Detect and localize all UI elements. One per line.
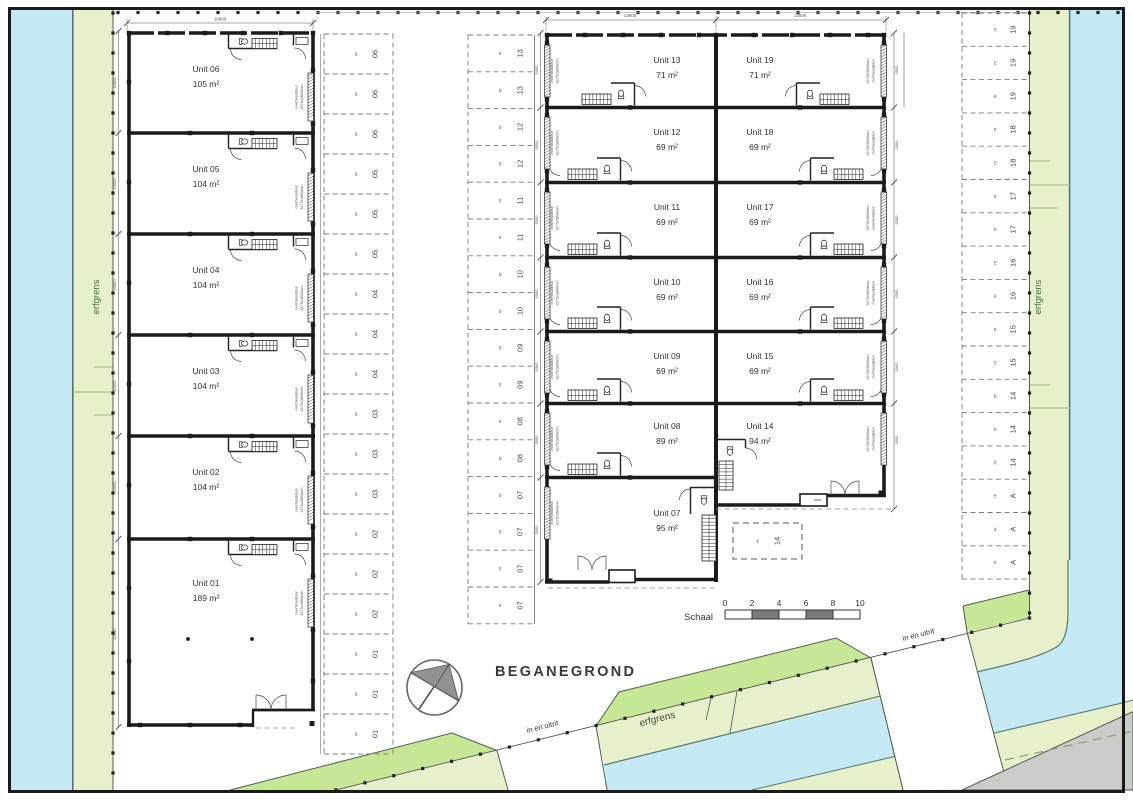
svg-text:nr: nr <box>354 612 359 616</box>
svg-text:overheaddeur: overheaddeur <box>872 59 876 83</box>
svg-text:nr: nr <box>354 132 359 136</box>
svg-text:Unit 07: Unit 07 <box>654 508 681 518</box>
svg-text:89 m²: 89 m² <box>656 436 678 446</box>
svg-text:19: 19 <box>1009 25 1018 33</box>
svg-text:overheaddeur: overheaddeur <box>872 131 876 155</box>
svg-text:05: 05 <box>371 210 380 218</box>
svg-text:13: 13 <box>516 86 525 94</box>
svg-text:Unit 11: Unit 11 <box>654 202 681 212</box>
svg-text:A: A <box>1009 493 1018 498</box>
svg-text:94 m²: 94 m² <box>749 436 771 446</box>
svg-text:BEGANEGROND: BEGANEGROND <box>495 664 636 680</box>
svg-text:69 m²: 69 m² <box>749 142 771 152</box>
svg-text:3275x3800mm: 3275x3800mm <box>556 426 560 451</box>
svg-text:18: 18 <box>1009 159 1018 167</box>
svg-text:01: 01 <box>371 730 380 738</box>
svg-text:69 m²: 69 m² <box>749 366 771 376</box>
svg-text:nr: nr <box>993 94 998 98</box>
svg-text:12: 12 <box>516 123 525 131</box>
svg-text:5000: 5000 <box>534 289 539 299</box>
svg-text:nr: nr <box>993 27 998 31</box>
svg-text:overheaddeur: overheaddeur <box>550 131 554 155</box>
svg-text:5000: 5000 <box>894 362 899 372</box>
svg-text:3275x3800mm: 3275x3800mm <box>866 130 870 155</box>
svg-text:11: 11 <box>516 234 525 242</box>
svg-text:Unit 17: Unit 17 <box>747 202 774 212</box>
svg-text:15: 15 <box>1009 325 1018 333</box>
svg-text:03: 03 <box>371 450 380 458</box>
svg-text:104 m²: 104 m² <box>193 482 220 492</box>
svg-text:overheaddeur: overheaddeur <box>872 206 876 230</box>
svg-text:10000: 10000 <box>112 380 117 392</box>
svg-text:03: 03 <box>371 410 380 418</box>
svg-text:3275x3800mm: 3275x3800mm <box>300 184 304 209</box>
svg-text:nr: nr <box>354 52 359 56</box>
svg-text:3275x3800mm: 3275x3800mm <box>866 426 870 451</box>
svg-text:4: 4 <box>777 598 782 608</box>
svg-text:02: 02 <box>371 610 380 618</box>
svg-text:Unit 06: Unit 06 <box>193 64 220 74</box>
svg-text:3275x3800mm: 3275x3800mm <box>556 354 560 379</box>
svg-text:69 m²: 69 m² <box>656 142 678 152</box>
svg-text:nr: nr <box>498 272 503 276</box>
svg-text:overheaddeur: overheaddeur <box>872 281 876 305</box>
svg-text:nr: nr <box>992 260 997 264</box>
svg-text:71 m²: 71 m² <box>656 70 678 80</box>
svg-text:nr: nr <box>354 332 359 336</box>
svg-text:3275x3800mm: 3275x3800mm <box>556 130 560 155</box>
svg-text:nr: nr <box>498 566 503 570</box>
svg-text:Unit 10: Unit 10 <box>654 277 681 287</box>
svg-text:09: 09 <box>516 344 525 352</box>
svg-text:5000: 5000 <box>534 140 539 150</box>
svg-text:nr: nr <box>498 419 503 423</box>
svg-text:nr: nr <box>354 492 359 496</box>
svg-text:nr: nr <box>993 127 998 131</box>
svg-text:nr: nr <box>354 732 359 736</box>
svg-text:5000: 5000 <box>534 435 539 445</box>
svg-text:overheaddeur: overheaddeur <box>295 286 299 310</box>
svg-text:17: 17 <box>1009 225 1018 233</box>
svg-text:Unit 18: Unit 18 <box>747 127 774 137</box>
svg-text:04: 04 <box>371 330 380 338</box>
svg-text:104 m²: 104 m² <box>193 280 220 290</box>
svg-text:nr: nr <box>993 460 998 464</box>
svg-text:3275x3800mm: 3275x3800mm <box>556 500 560 525</box>
svg-text:11: 11 <box>516 197 525 205</box>
svg-text:04: 04 <box>371 290 380 298</box>
svg-text:5000: 5000 <box>894 289 899 299</box>
svg-text:3275x3800mm: 3275x3800mm <box>866 58 870 83</box>
svg-text:nr: nr <box>993 160 998 164</box>
svg-text:69 m²: 69 m² <box>749 217 771 227</box>
svg-text:10000: 10000 <box>112 481 117 493</box>
svg-text:overheaddeur: overheaddeur <box>550 355 554 379</box>
svg-text:09: 09 <box>516 380 525 388</box>
svg-text:06: 06 <box>371 130 380 138</box>
svg-text:overheaddeur: overheaddeur <box>550 281 554 305</box>
svg-text:07: 07 <box>516 564 525 572</box>
svg-text:Unit 01: Unit 01 <box>193 578 220 588</box>
svg-text:erfgrens: erfgrens <box>1033 279 1044 314</box>
svg-text:13605: 13605 <box>794 13 807 18</box>
svg-text:5000: 5000 <box>894 215 899 225</box>
svg-text:nr: nr <box>498 125 503 129</box>
svg-text:10000: 10000 <box>112 178 117 190</box>
svg-text:overheaddeur: overheaddeur <box>295 185 299 209</box>
svg-text:69 m²: 69 m² <box>656 217 678 227</box>
svg-text:overheaddeur: overheaddeur <box>872 355 876 379</box>
svg-text:14: 14 <box>773 537 782 545</box>
svg-text:69 m²: 69 m² <box>656 366 678 376</box>
svg-text:Unit 12: Unit 12 <box>654 127 681 137</box>
svg-text:5000: 5000 <box>894 65 899 75</box>
svg-text:nr: nr <box>498 456 503 460</box>
svg-text:A: A <box>1009 527 1018 532</box>
svg-text:14: 14 <box>1009 458 1018 466</box>
svg-text:Unit 13: Unit 13 <box>654 55 681 65</box>
svg-text:overheaddeur: overheaddeur <box>295 85 299 109</box>
svg-text:3275x3800mm: 3275x3800mm <box>300 487 304 512</box>
svg-text:04: 04 <box>371 370 380 378</box>
svg-text:03: 03 <box>371 490 380 498</box>
svg-text:nr: nr <box>993 227 998 231</box>
svg-text:Unit 09: Unit 09 <box>654 351 681 361</box>
svg-text:02: 02 <box>371 530 380 538</box>
svg-text:0: 0 <box>723 598 728 608</box>
svg-text:06: 06 <box>371 50 380 58</box>
svg-text:3275x3800mm: 3275x3800mm <box>866 205 870 230</box>
svg-text:07: 07 <box>516 528 525 536</box>
svg-text:nr: nr <box>354 652 359 656</box>
svg-text:nr: nr <box>498 382 503 386</box>
svg-text:14: 14 <box>1009 392 1018 400</box>
svg-text:nr: nr <box>498 529 503 533</box>
svg-text:71 m²: 71 m² <box>749 70 771 80</box>
svg-text:nr: nr <box>354 292 359 296</box>
svg-text:2: 2 <box>750 598 755 608</box>
svg-text:Unit 08: Unit 08 <box>654 421 681 431</box>
svg-text:nr: nr <box>354 412 359 416</box>
svg-text:02: 02 <box>371 570 380 578</box>
svg-text:3275x3800mm: 3275x3800mm <box>556 58 560 83</box>
svg-text:15: 15 <box>1009 358 1018 366</box>
svg-text:overheaddeur: overheaddeur <box>550 206 554 230</box>
svg-text:nr: nr <box>354 92 359 96</box>
svg-text:06: 06 <box>371 90 380 98</box>
svg-text:3275x3800mm: 3275x3800mm <box>300 84 304 109</box>
svg-text:104 m²: 104 m² <box>193 381 220 391</box>
svg-text:nr: nr <box>498 345 503 349</box>
svg-text:07: 07 <box>516 491 525 499</box>
svg-text:69 m²: 69 m² <box>749 292 771 302</box>
svg-text:nr: nr <box>993 327 998 331</box>
svg-text:overheaddeur: overheaddeur <box>550 427 554 451</box>
svg-text:overheaddeur: overheaddeur <box>295 591 299 615</box>
svg-text:Schaal: Schaal <box>684 612 713 623</box>
svg-text:Unit 16: Unit 16 <box>747 277 774 287</box>
svg-text:nr: nr <box>993 527 998 531</box>
svg-text:nr: nr <box>993 560 998 564</box>
svg-text:nr: nr <box>993 194 998 198</box>
svg-text:nr: nr <box>993 294 998 298</box>
svg-text:Unit 03: Unit 03 <box>193 366 220 376</box>
svg-text:overheaddeur: overheaddeur <box>550 59 554 83</box>
svg-text:69 m²: 69 m² <box>656 292 678 302</box>
svg-text:3275x3800mm: 3275x3800mm <box>556 280 560 305</box>
svg-text:Unit 19: Unit 19 <box>747 55 774 65</box>
svg-text:3275x3800mm: 3275x3800mm <box>300 386 304 411</box>
svg-text:5000: 5000 <box>534 362 539 372</box>
svg-text:nr: nr <box>354 692 359 696</box>
svg-text:nr: nr <box>993 360 998 364</box>
svg-text:104 m²: 104 m² <box>193 179 220 189</box>
svg-text:5000: 5000 <box>534 525 539 535</box>
svg-text:01: 01 <box>371 650 380 658</box>
svg-text:10: 10 <box>516 270 525 278</box>
svg-text:10000: 10000 <box>112 628 117 640</box>
svg-text:erfgrens: erfgrens <box>91 279 102 314</box>
svg-text:13: 13 <box>516 49 525 57</box>
svg-text:Unit 05: Unit 05 <box>193 164 220 174</box>
svg-text:16: 16 <box>1009 292 1018 300</box>
svg-text:17: 17 <box>1009 192 1018 200</box>
svg-text:nr: nr <box>993 427 998 431</box>
svg-text:95 m²: 95 m² <box>656 523 678 533</box>
svg-text:Unit 02: Unit 02 <box>193 467 220 477</box>
svg-text:nr: nr <box>993 60 998 64</box>
svg-text:10: 10 <box>855 598 865 608</box>
svg-text:3275x3800mm: 3275x3800mm <box>866 354 870 379</box>
svg-text:07: 07 <box>516 601 525 609</box>
svg-text:6: 6 <box>804 598 809 608</box>
svg-text:5000: 5000 <box>894 435 899 445</box>
svg-text:nr: nr <box>354 172 359 176</box>
svg-text:3275x3800mm: 3275x3800mm <box>300 285 304 310</box>
svg-text:A: A <box>1009 560 1018 565</box>
svg-text:3275x3800mm: 3275x3800mm <box>556 205 560 230</box>
svg-text:Unit 04: Unit 04 <box>193 265 220 275</box>
svg-text:5000: 5000 <box>894 140 899 150</box>
svg-text:12: 12 <box>516 160 525 168</box>
svg-text:nr: nr <box>498 88 503 92</box>
svg-text:08: 08 <box>516 454 525 462</box>
svg-text:3275x3800mm: 3275x3800mm <box>866 280 870 305</box>
svg-text:nr: nr <box>498 198 503 202</box>
svg-text:nr: nr <box>498 235 503 239</box>
svg-text:nr: nr <box>354 532 359 536</box>
svg-text:19: 19 <box>1009 92 1018 100</box>
svg-text:Unit 15: Unit 15 <box>747 351 774 361</box>
svg-text:18600: 18600 <box>214 17 227 22</box>
svg-text:05: 05 <box>371 250 380 258</box>
svg-text:nr: nr <box>498 493 503 497</box>
svg-text:nr: nr <box>498 603 503 607</box>
svg-text:Unit 14: Unit 14 <box>747 421 774 431</box>
svg-text:3275x3800mm: 3275x3800mm <box>300 590 304 615</box>
svg-text:overheaddeur: overheaddeur <box>872 427 876 451</box>
svg-text:nr: nr <box>498 161 503 165</box>
svg-text:overheaddeur: overheaddeur <box>295 488 299 512</box>
svg-text:10000: 10000 <box>112 77 117 89</box>
svg-text:nr: nr <box>755 539 760 543</box>
svg-text:08: 08 <box>516 417 525 425</box>
svg-text:nr: nr <box>354 252 359 256</box>
svg-text:05: 05 <box>371 170 380 178</box>
svg-text:13605: 13605 <box>624 13 637 18</box>
svg-text:nr: nr <box>993 393 998 397</box>
svg-text:10000: 10000 <box>112 279 117 291</box>
svg-text:5000: 5000 <box>534 65 539 75</box>
svg-text:01: 01 <box>371 690 380 698</box>
svg-text:nr: nr <box>354 452 359 456</box>
svg-text:16: 16 <box>1008 259 1017 267</box>
svg-text:nr: nr <box>993 493 998 497</box>
svg-text:nr: nr <box>498 51 503 55</box>
svg-text:nr: nr <box>354 372 359 376</box>
svg-text:overheaddeur: overheaddeur <box>550 501 554 525</box>
svg-text:14: 14 <box>1009 425 1018 433</box>
svg-text:nr: nr <box>354 572 359 576</box>
svg-text:5000: 5000 <box>534 215 539 225</box>
svg-text:10: 10 <box>516 307 525 315</box>
svg-text:105 m²: 105 m² <box>193 79 220 89</box>
svg-text:nr: nr <box>354 212 359 216</box>
svg-text:18: 18 <box>1009 125 1018 133</box>
svg-text:overheaddeur: overheaddeur <box>295 387 299 411</box>
svg-text:189 m²: 189 m² <box>193 593 220 603</box>
svg-text:8: 8 <box>831 598 836 608</box>
svg-text:19: 19 <box>1009 59 1018 67</box>
svg-text:nr: nr <box>498 309 503 313</box>
